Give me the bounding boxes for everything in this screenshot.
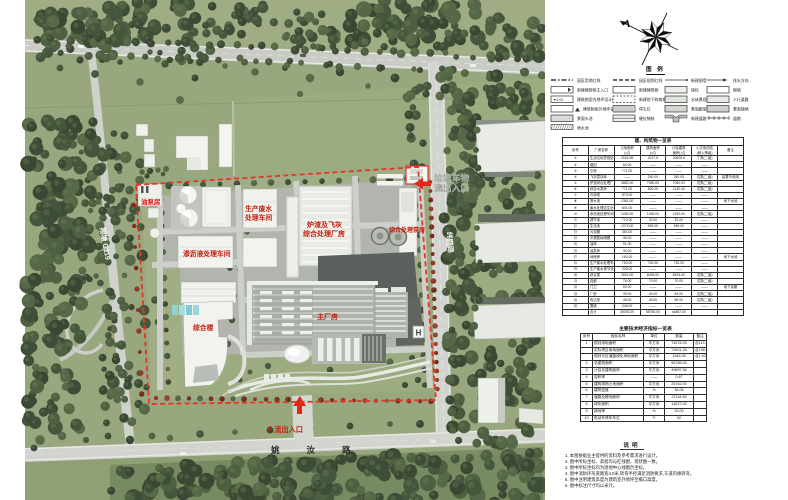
svg-text:喷水池: 喷水池 (577, 126, 589, 131)
svg-text:硬化铺装: 硬化铺装 (639, 116, 655, 121)
svg-text:新建围墙: 新建围墙 (691, 78, 707, 83)
svg-text:炉渣及飞灰: 炉渣及飞灰 (307, 220, 342, 229)
svg-text:▼6.00: ▼6.00 (553, 98, 563, 102)
svg-text:道路: 道路 (733, 116, 741, 121)
svg-text:排水方向: 排水方向 (733, 78, 749, 83)
svg-text:渗沥液处理车间: 渗沥液处理车间 (183, 249, 231, 258)
svg-text:油泵房: 油泵房 (141, 197, 161, 206)
svg-text:景观水池: 景观水池 (577, 116, 593, 121)
svg-text:水体景观: 水体景观 (691, 97, 707, 102)
svg-text:新建建筑物: 新建建筑物 (639, 88, 659, 93)
svg-text:园区用地红线: 园区用地红线 (577, 78, 600, 83)
svg-text:围墙: 围墙 (733, 88, 741, 93)
svg-text:新建建筑物主入口: 新建建筑物主入口 (577, 88, 608, 93)
svg-text:垃圾车物: 垃圾车物 (434, 172, 469, 183)
svg-text:姚汝路: 姚汝路 (270, 445, 378, 455)
svg-text:生产废水: 生产废水 (245, 204, 272, 213)
svg-text:综合楼: 综合楼 (193, 323, 214, 332)
svg-text:绿化: 绿化 (691, 88, 699, 93)
svg-text:H: H (416, 329, 422, 338)
svg-text:新建道路: 新建道路 (691, 116, 707, 121)
svg-text:主厂房: 主厂房 (317, 312, 338, 321)
svg-text:人流出入口: 人流出入口 (267, 425, 303, 434)
svg-text:处理车间: 处理车间 (244, 213, 272, 222)
svg-text:园区规划红线: 园区规划红线 (639, 78, 662, 83)
svg-text:综合处理泵房: 综合处理泵房 (389, 226, 425, 234)
svg-text:景观铺地: 景观铺地 (733, 107, 749, 112)
svg-text:景观廊架: 景观廊架 (691, 107, 707, 112)
svg-text:新建地下构筑物: 新建地下构筑物 (639, 97, 666, 102)
svg-text:流出入口: 流出入口 (434, 182, 469, 193)
svg-text:综合处理厂房: 综合处理厂房 (303, 229, 345, 238)
svg-text:人行道路: 人行道路 (733, 97, 749, 102)
svg-text:停车位: 停车位 (639, 107, 651, 112)
